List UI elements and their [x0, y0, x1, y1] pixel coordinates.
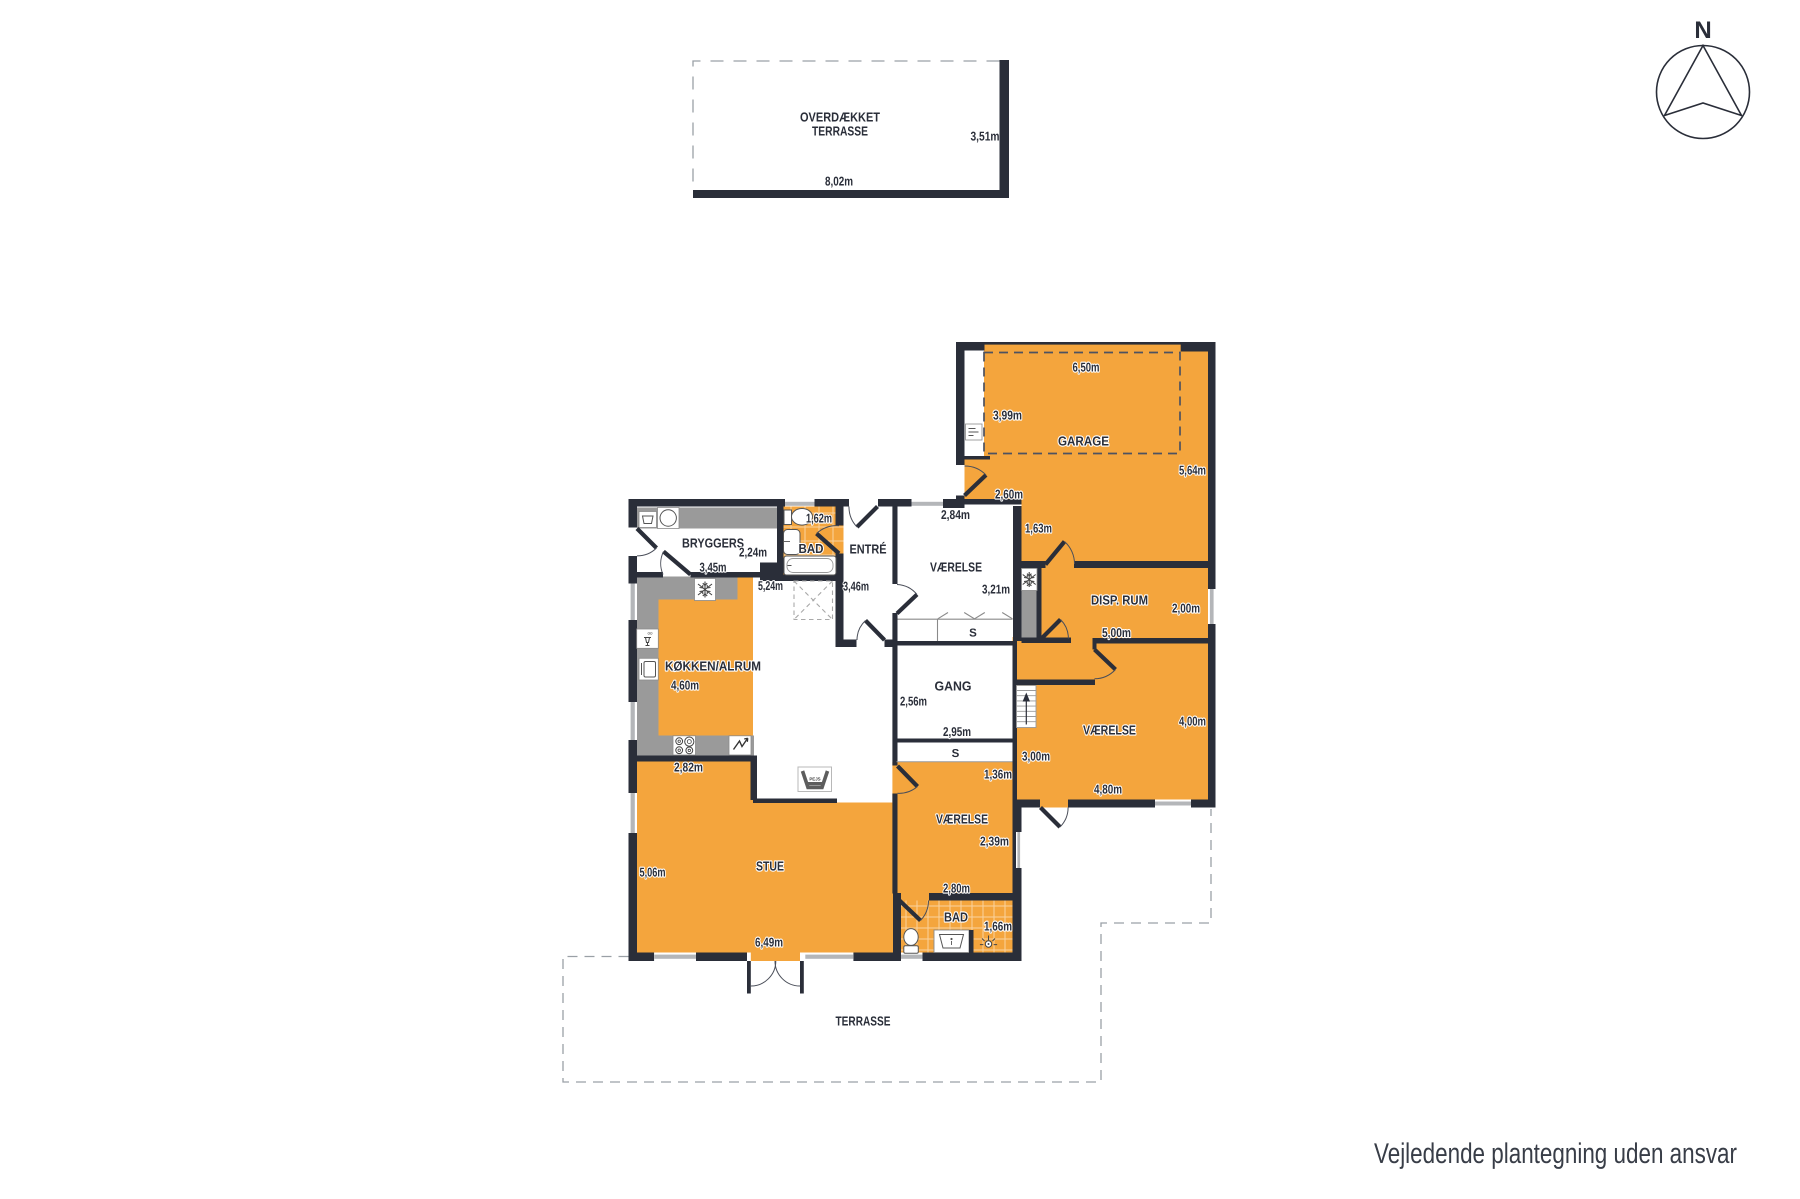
- svg-text:GARAGE: GARAGE: [1058, 434, 1109, 449]
- svg-text:VÆRELSE: VÆRELSE: [936, 812, 988, 827]
- svg-text:S: S: [969, 628, 977, 640]
- svg-text:3,45m: 3,45m: [700, 560, 727, 575]
- svg-text:5,00m: 5,00m: [1102, 625, 1131, 640]
- svg-text:5,24m: 5,24m: [758, 578, 783, 593]
- svg-text:6,50m: 6,50m: [1073, 360, 1100, 375]
- svg-text:1,66m: 1,66m: [984, 919, 1012, 934]
- svg-text:8,02m: 8,02m: [825, 174, 853, 189]
- svg-text:1,62m: 1,62m: [806, 511, 832, 526]
- svg-text:KØKKEN/ALRUM: KØKKEN/ALRUM: [665, 659, 761, 674]
- svg-text:S: S: [952, 748, 960, 760]
- svg-text:Vejledende plantegning uden an: Vejledende plantegning uden ansvar: [1374, 1138, 1737, 1170]
- svg-text:3,00m: 3,00m: [1022, 749, 1050, 764]
- svg-text:TERRASSE: TERRASSE: [836, 1014, 891, 1029]
- svg-text:2,00m: 2,00m: [1172, 601, 1200, 616]
- svg-text:2,56m: 2,56m: [900, 694, 927, 709]
- svg-text:STUE: STUE: [756, 859, 784, 874]
- svg-text:BAD: BAD: [944, 910, 968, 925]
- svg-text:6,49m: 6,49m: [755, 935, 783, 950]
- svg-text:oo: oo: [647, 631, 653, 636]
- svg-text:2,24m: 2,24m: [739, 545, 767, 560]
- svg-text:PEJS: PEJS: [809, 777, 820, 782]
- svg-text:BAD: BAD: [799, 541, 824, 556]
- svg-text:1,63m: 1,63m: [1025, 521, 1052, 536]
- svg-text:TERRASSE: TERRASSE: [812, 124, 868, 139]
- svg-text:5,64m: 5,64m: [1179, 463, 1206, 478]
- svg-text:2,95m: 2,95m: [943, 724, 971, 739]
- svg-text:3,21m: 3,21m: [982, 582, 1010, 597]
- svg-text:3,46m: 3,46m: [843, 579, 869, 594]
- svg-text:2,82m: 2,82m: [674, 760, 703, 775]
- svg-text:GANG: GANG: [935, 679, 972, 694]
- svg-text:VÆRELSE: VÆRELSE: [930, 560, 982, 575]
- svg-text:N: N: [1694, 17, 1711, 44]
- svg-text:DISP. RUM: DISP. RUM: [1091, 593, 1148, 608]
- svg-text:3,99m: 3,99m: [993, 408, 1022, 423]
- svg-text:2,80m: 2,80m: [943, 881, 970, 896]
- svg-text:4,60m: 4,60m: [671, 678, 699, 693]
- svg-text:OVERDÆKKET: OVERDÆKKET: [800, 110, 880, 125]
- svg-text:VÆRELSE: VÆRELSE: [1083, 723, 1136, 738]
- svg-text:2,39m: 2,39m: [980, 834, 1009, 849]
- svg-text:4,80m: 4,80m: [1094, 782, 1122, 797]
- svg-text:5,06m: 5,06m: [640, 865, 666, 880]
- svg-text:ENTRÉ: ENTRÉ: [850, 542, 887, 557]
- svg-text:BRYGGERS: BRYGGERS: [682, 536, 744, 551]
- svg-text:1,36m: 1,36m: [984, 767, 1012, 782]
- svg-text:4,00m: 4,00m: [1179, 714, 1206, 729]
- svg-text:2,60m: 2,60m: [995, 487, 1023, 502]
- svg-text:3,51m: 3,51m: [971, 129, 1000, 144]
- svg-text:2,84m: 2,84m: [941, 507, 970, 522]
